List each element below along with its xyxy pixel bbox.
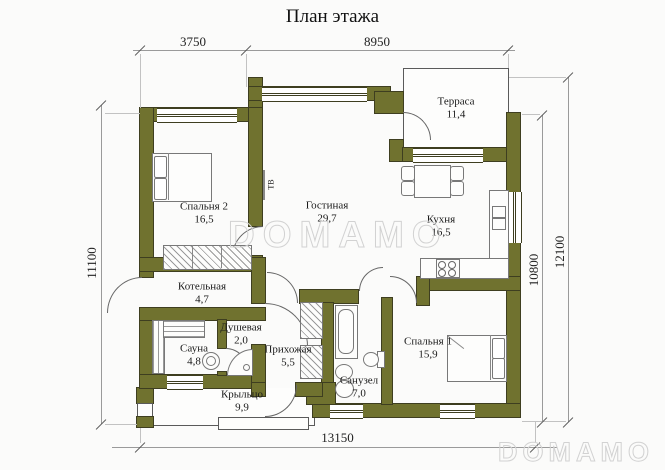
room-area: 5,5	[264, 356, 311, 369]
window	[440, 404, 475, 419]
wall-segment	[417, 277, 429, 305]
wall-segment	[322, 303, 333, 383]
bed-line	[490, 335, 491, 380]
wall-segment	[252, 258, 265, 303]
bathtub-inner	[338, 309, 354, 354]
window	[262, 87, 367, 102]
ext-line	[509, 77, 566, 78]
room-area: 7,0	[340, 387, 378, 400]
room-name: Душевая	[220, 321, 261, 334]
pillow	[154, 178, 167, 200]
wardrobe	[300, 302, 323, 339]
kitchen-counter	[420, 258, 509, 279]
room-label-bedroom1: Спальня 1 15,9	[404, 335, 452, 360]
shower-drain	[243, 364, 250, 371]
dim-line-top	[133, 50, 515, 51]
bed-line	[168, 153, 169, 200]
stove-burner	[448, 261, 456, 269]
room-area: 9,9	[221, 401, 263, 414]
chair	[401, 166, 415, 181]
wall-segment	[375, 92, 403, 113]
wall-segment	[390, 140, 403, 161]
dim-label-13150: 13150	[140, 430, 535, 446]
room-name: Сауна	[180, 342, 208, 355]
pillow	[492, 358, 505, 379]
room-name: Котельная	[178, 280, 226, 293]
dim-label-12100: 12100	[552, 236, 568, 269]
room-name: Крыльцо	[221, 388, 263, 401]
window	[413, 148, 483, 163]
dim-line-bottom	[112, 447, 557, 448]
room-label-hall: Прихожая 5,5	[264, 343, 311, 368]
watermark-center: DOMAMO	[228, 214, 449, 256]
door-arc-bathroom	[359, 267, 383, 291]
kitchen-sink	[492, 218, 506, 230]
ext-line	[522, 114, 540, 115]
dining-table	[414, 165, 451, 198]
chair	[401, 181, 415, 196]
pillow	[154, 156, 167, 178]
wall-segment	[252, 345, 265, 383]
ext-line	[140, 54, 141, 108]
stove-burner	[448, 269, 456, 277]
porch-step	[218, 417, 309, 430]
stove-burner	[438, 269, 446, 277]
window	[507, 192, 522, 243]
room-label-terrace: Терраса 11,4	[438, 95, 475, 120]
ext-line	[105, 424, 137, 425]
floor-plan-canvas: План этажа	[0, 0, 665, 470]
room-label-bath: Санузел 7,0	[340, 374, 378, 399]
room-label-sauna: Сауна 4,8	[180, 342, 208, 367]
wall-segment	[249, 108, 262, 226]
dim-label-10800: 10800	[526, 254, 542, 287]
dim-line-left	[101, 105, 102, 424]
room-name: Санузел	[340, 374, 378, 387]
wardrobe-divider	[221, 245, 222, 268]
room-area: 11,4	[438, 108, 475, 121]
toilet-bowl	[363, 352, 379, 367]
window	[330, 404, 363, 419]
door-arc-bedroom1	[390, 276, 417, 303]
dim-label-3750: 3750	[140, 34, 246, 50]
ext-line	[105, 113, 140, 114]
room-name: Гостиная	[306, 199, 349, 212]
wall-segment	[218, 372, 226, 375]
room-area: 4,7	[178, 293, 226, 306]
room-name: Прихожая	[264, 343, 311, 356]
stove-burner	[438, 261, 446, 269]
room-area: 2,0	[220, 334, 261, 347]
room-name: Спальня 1	[404, 335, 452, 348]
room-label-bedroom2: Спальня 2 16,5	[180, 200, 228, 225]
chair	[450, 181, 464, 196]
room-name: Терраса	[438, 95, 475, 108]
room-area: 16,5	[180, 213, 228, 226]
window	[157, 108, 237, 123]
door-arc-hall-living	[267, 272, 298, 303]
room-area: 4,8	[180, 355, 208, 368]
wall-segment	[137, 388, 153, 403]
ext-line	[246, 54, 247, 87]
dim-line-right-outer	[568, 77, 569, 422]
kitchen-sink	[492, 206, 506, 218]
dim-label-8950: 8950	[246, 34, 508, 50]
page-title: План этажа	[0, 6, 665, 28]
pillow	[492, 338, 505, 359]
room-area: 15,9	[404, 348, 452, 361]
room-label-boiler: Котельная 4,7	[178, 280, 226, 305]
sauna-bench	[163, 320, 205, 338]
wall-segment	[137, 417, 153, 427]
room-label-shower: Душевая 2,0	[220, 321, 261, 346]
wall-niche	[137, 403, 153, 417]
wardrobe-divider	[192, 245, 193, 268]
dim-line-right-inner	[542, 115, 543, 422]
wall-segment	[140, 308, 265, 320]
tv-label: ТВ	[267, 179, 276, 189]
room-label-porch: Крыльцо 9,9	[221, 388, 263, 413]
room-name: Спальня 2	[180, 200, 228, 213]
door-arc-boiler-exterior	[107, 277, 142, 313]
tv-bracket	[263, 170, 265, 200]
chair	[450, 166, 464, 181]
wall-segment	[296, 383, 322, 396]
dim-label-11100: 11100	[84, 247, 100, 279]
window	[167, 375, 203, 390]
ext-line	[508, 54, 509, 68]
watermark-corner: DOMAMO	[498, 437, 654, 468]
